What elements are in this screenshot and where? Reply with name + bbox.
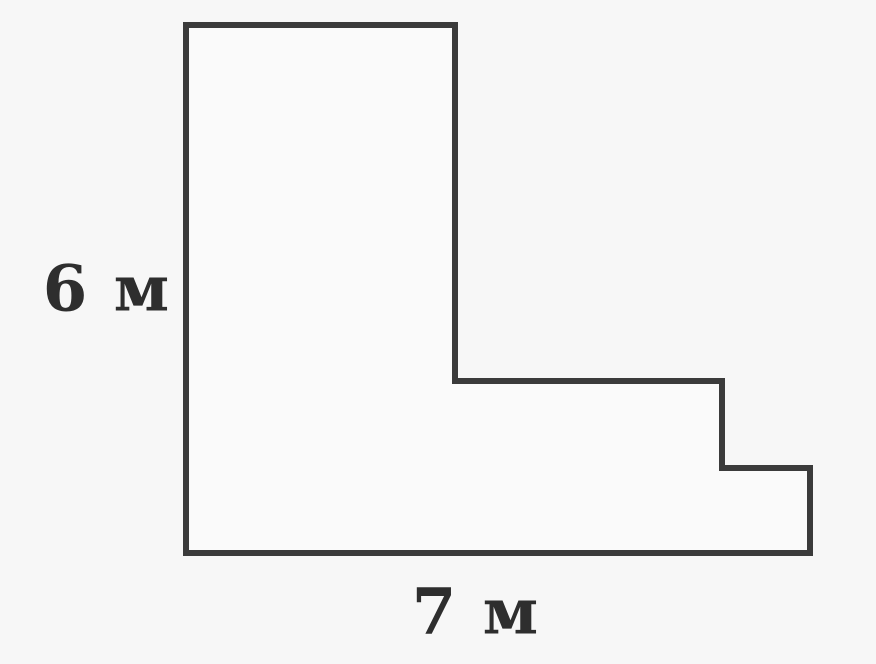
width-dimension-label: 7 м xyxy=(412,575,540,650)
polygon-figure xyxy=(0,0,876,664)
diagram-canvas: 6 м 7 м xyxy=(0,0,876,664)
staircase-polygon-outline xyxy=(186,25,810,553)
height-dimension-label: 6 м xyxy=(43,252,171,327)
